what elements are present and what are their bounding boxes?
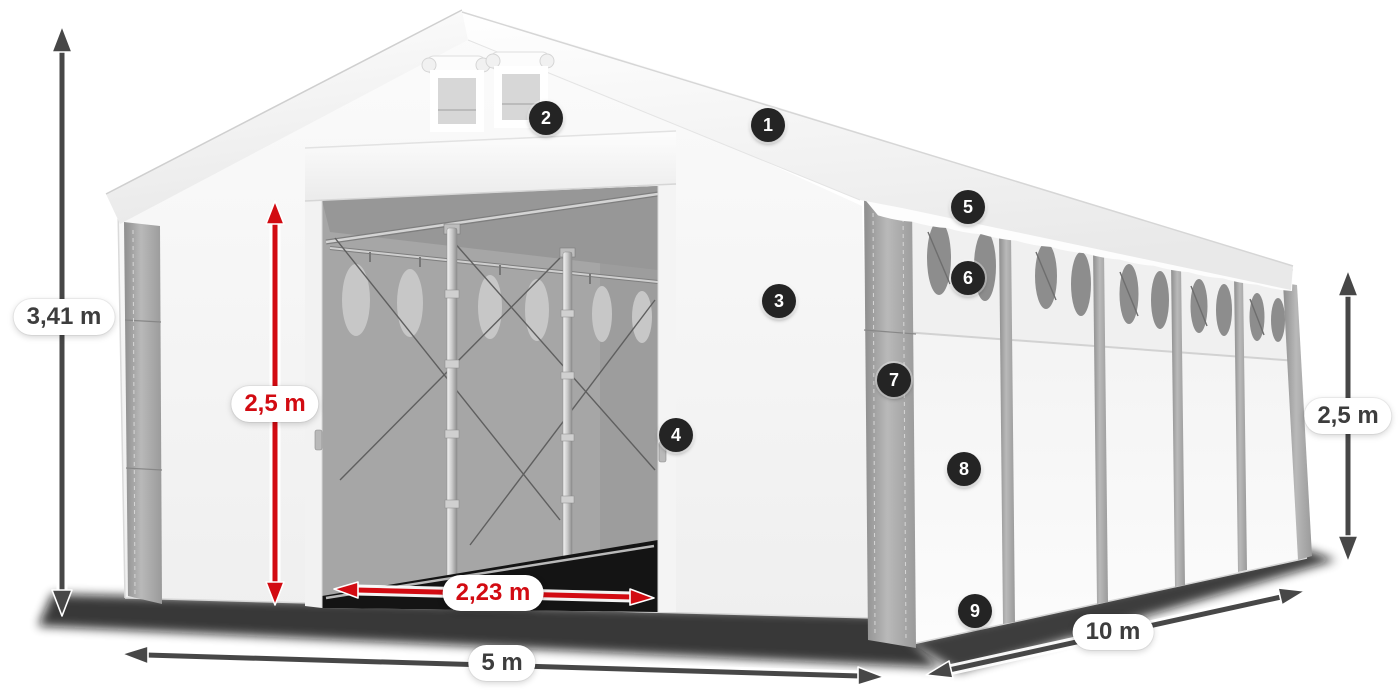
door-handle-left [315, 430, 322, 450]
feature-marker-4[interactable]: 4 [659, 418, 693, 452]
tent-diagram: 1 2 3 4 5 6 7 8 9 3,41 m 2,5 m 2,23 m 5 … [0, 0, 1400, 700]
dimension-label-side-height: 2,5 m [1304, 398, 1391, 434]
dimension-label-door-width: 2,23 m [443, 575, 544, 611]
corner-post-right [864, 194, 916, 648]
feature-marker-2[interactable]: 2 [529, 101, 563, 135]
feature-marker-8[interactable]: 8 [947, 452, 981, 486]
feature-marker-3[interactable]: 3 [762, 284, 796, 318]
dimension-label-side-length: 10 m [1073, 614, 1154, 650]
feature-marker-7[interactable]: 7 [877, 363, 911, 397]
feature-marker-6[interactable]: 6 [951, 261, 985, 295]
feature-marker-1[interactable]: 1 [751, 108, 785, 142]
dimension-label-door-height: 2,5 m [231, 386, 318, 422]
feature-marker-9[interactable]: 9 [958, 594, 992, 628]
dimension-label-front-width: 5 m [468, 645, 535, 681]
tent-illustration [0, 0, 1400, 700]
feature-marker-5[interactable]: 5 [951, 190, 985, 224]
dimension-label-total-height: 3,41 m [14, 299, 115, 335]
corner-post-left [124, 222, 162, 604]
door-opening [322, 186, 658, 612]
